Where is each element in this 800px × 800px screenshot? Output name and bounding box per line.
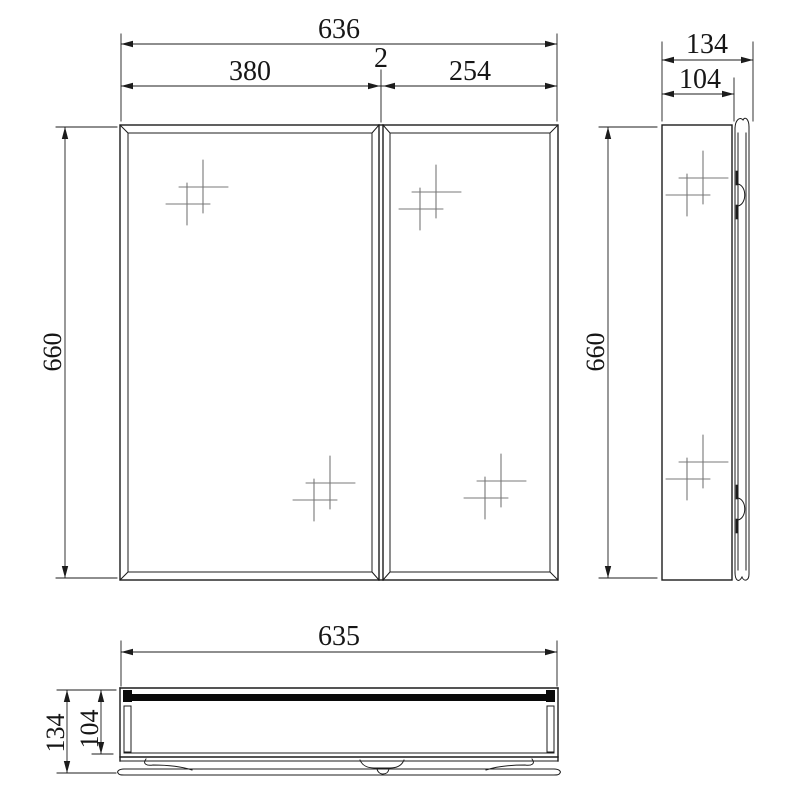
dim-side-height: 660 (581, 127, 657, 578)
hinge-icon (738, 184, 745, 206)
side-panel-left (124, 706, 131, 752)
right-door-bevel (383, 125, 558, 580)
dim-front-overall-width: 636 (121, 14, 557, 121)
dim-label-side-height: 660 (581, 333, 610, 372)
dim-label-bottom-width: 635 (318, 621, 360, 652)
sparkle-icon (666, 151, 728, 216)
dim-label-front-gap: 2 (374, 43, 388, 74)
cad-drawing-canvas: 636 380 2 254 660 (0, 0, 800, 800)
front-dimensions: 636 380 2 254 660 (38, 14, 557, 578)
front-cabinet-outline (120, 125, 558, 580)
dim-label-front-height: 660 (38, 333, 67, 372)
bottom-plinth (118, 769, 561, 775)
mirror-edge-bar (130, 694, 548, 701)
dim-label-side-overall-depth: 134 (686, 29, 728, 60)
side-door-profile (735, 118, 749, 580)
dim-label-front-left-door: 380 (229, 56, 271, 87)
dim-label-side-body-depth: 104 (679, 64, 721, 95)
bottom-view (118, 688, 561, 775)
sparkle-icon (293, 456, 355, 521)
hinge-icon (738, 498, 745, 520)
dim-bottom-body-depth: 104 (75, 690, 113, 754)
side-view (662, 118, 749, 580)
dim-label-bottom-body-depth: 104 (75, 710, 104, 749)
hinge-block-right (546, 690, 555, 702)
dim-side-body-depth: 104 (662, 64, 734, 121)
dim-label-front-overall-width: 636 (318, 14, 360, 45)
dim-front-door-widths: 380 2 254 (121, 43, 557, 122)
side-dimensions: 134 104 660 (581, 29, 753, 578)
side-body (662, 125, 732, 580)
side-panel-right (547, 706, 554, 752)
sparkle-icon (464, 454, 526, 519)
left-door-bevel (120, 125, 379, 580)
drawing-sheet: 636 380 2 254 660 (0, 0, 800, 800)
sparkle-icon (166, 160, 228, 225)
sparkle-icon (666, 435, 728, 500)
plinth-center-tab (377, 769, 389, 774)
dim-label-front-right-door: 254 (449, 56, 491, 87)
front-view (120, 125, 558, 580)
hinge-block-left (123, 690, 132, 702)
dim-label-bottom-overall-depth: 134 (41, 714, 70, 753)
dim-front-height: 660 (38, 127, 117, 578)
sparkle-icon (399, 165, 461, 230)
dim-bottom-width: 635 (121, 621, 557, 686)
